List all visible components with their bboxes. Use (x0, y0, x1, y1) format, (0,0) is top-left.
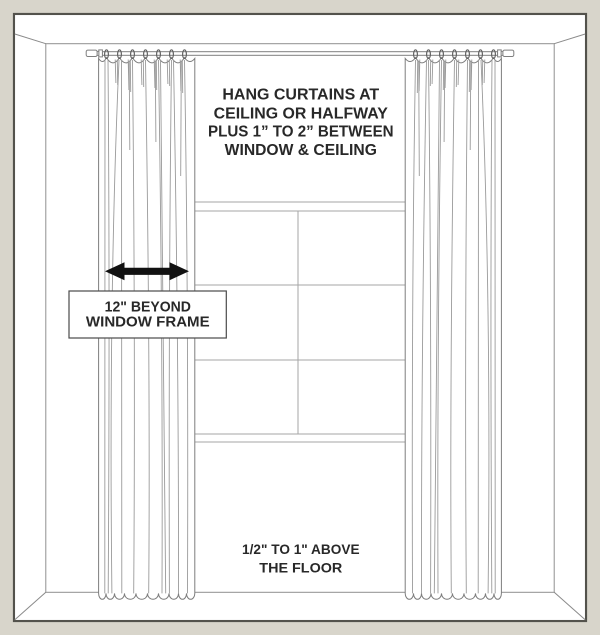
svg-text:12" BEYOND: 12" BEYOND (105, 299, 192, 315)
svg-text:CEILING OR HALFWAY: CEILING OR HALFWAY (214, 105, 389, 122)
svg-text:PLUS 1” TO 2” BETWEEN: PLUS 1” TO 2” BETWEEN (208, 124, 394, 141)
svg-text:WINDOW & CEILING: WINDOW & CEILING (225, 142, 377, 159)
svg-text:THE FLOOR: THE FLOOR (259, 559, 342, 575)
svg-text:HANG CURTAINS AT: HANG CURTAINS AT (222, 87, 379, 104)
svg-text:1/2" TO 1" ABOVE: 1/2" TO 1" ABOVE (242, 541, 360, 557)
svg-text:WINDOW FRAME: WINDOW FRAME (86, 315, 210, 331)
